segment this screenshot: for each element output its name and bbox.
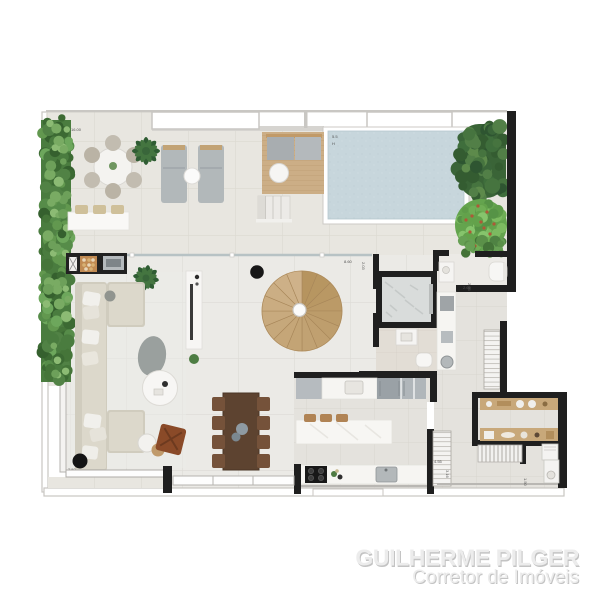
svg-text:3.16: 3.16 xyxy=(445,470,450,479)
svg-text:8.60: 8.60 xyxy=(344,259,353,264)
svg-text:4.55: 4.55 xyxy=(434,459,443,464)
svg-text:H: H xyxy=(332,141,335,146)
svg-text:5.5: 5.5 xyxy=(332,134,338,139)
svg-text:16.00: 16.00 xyxy=(71,127,82,132)
svg-text:Corretor de Imóveis: Corretor de Imóveis xyxy=(412,567,579,588)
svg-text:1.50: 1.50 xyxy=(523,478,528,487)
svg-text:2.86: 2.86 xyxy=(467,283,472,292)
svg-text:2.03: 2.03 xyxy=(361,262,366,271)
